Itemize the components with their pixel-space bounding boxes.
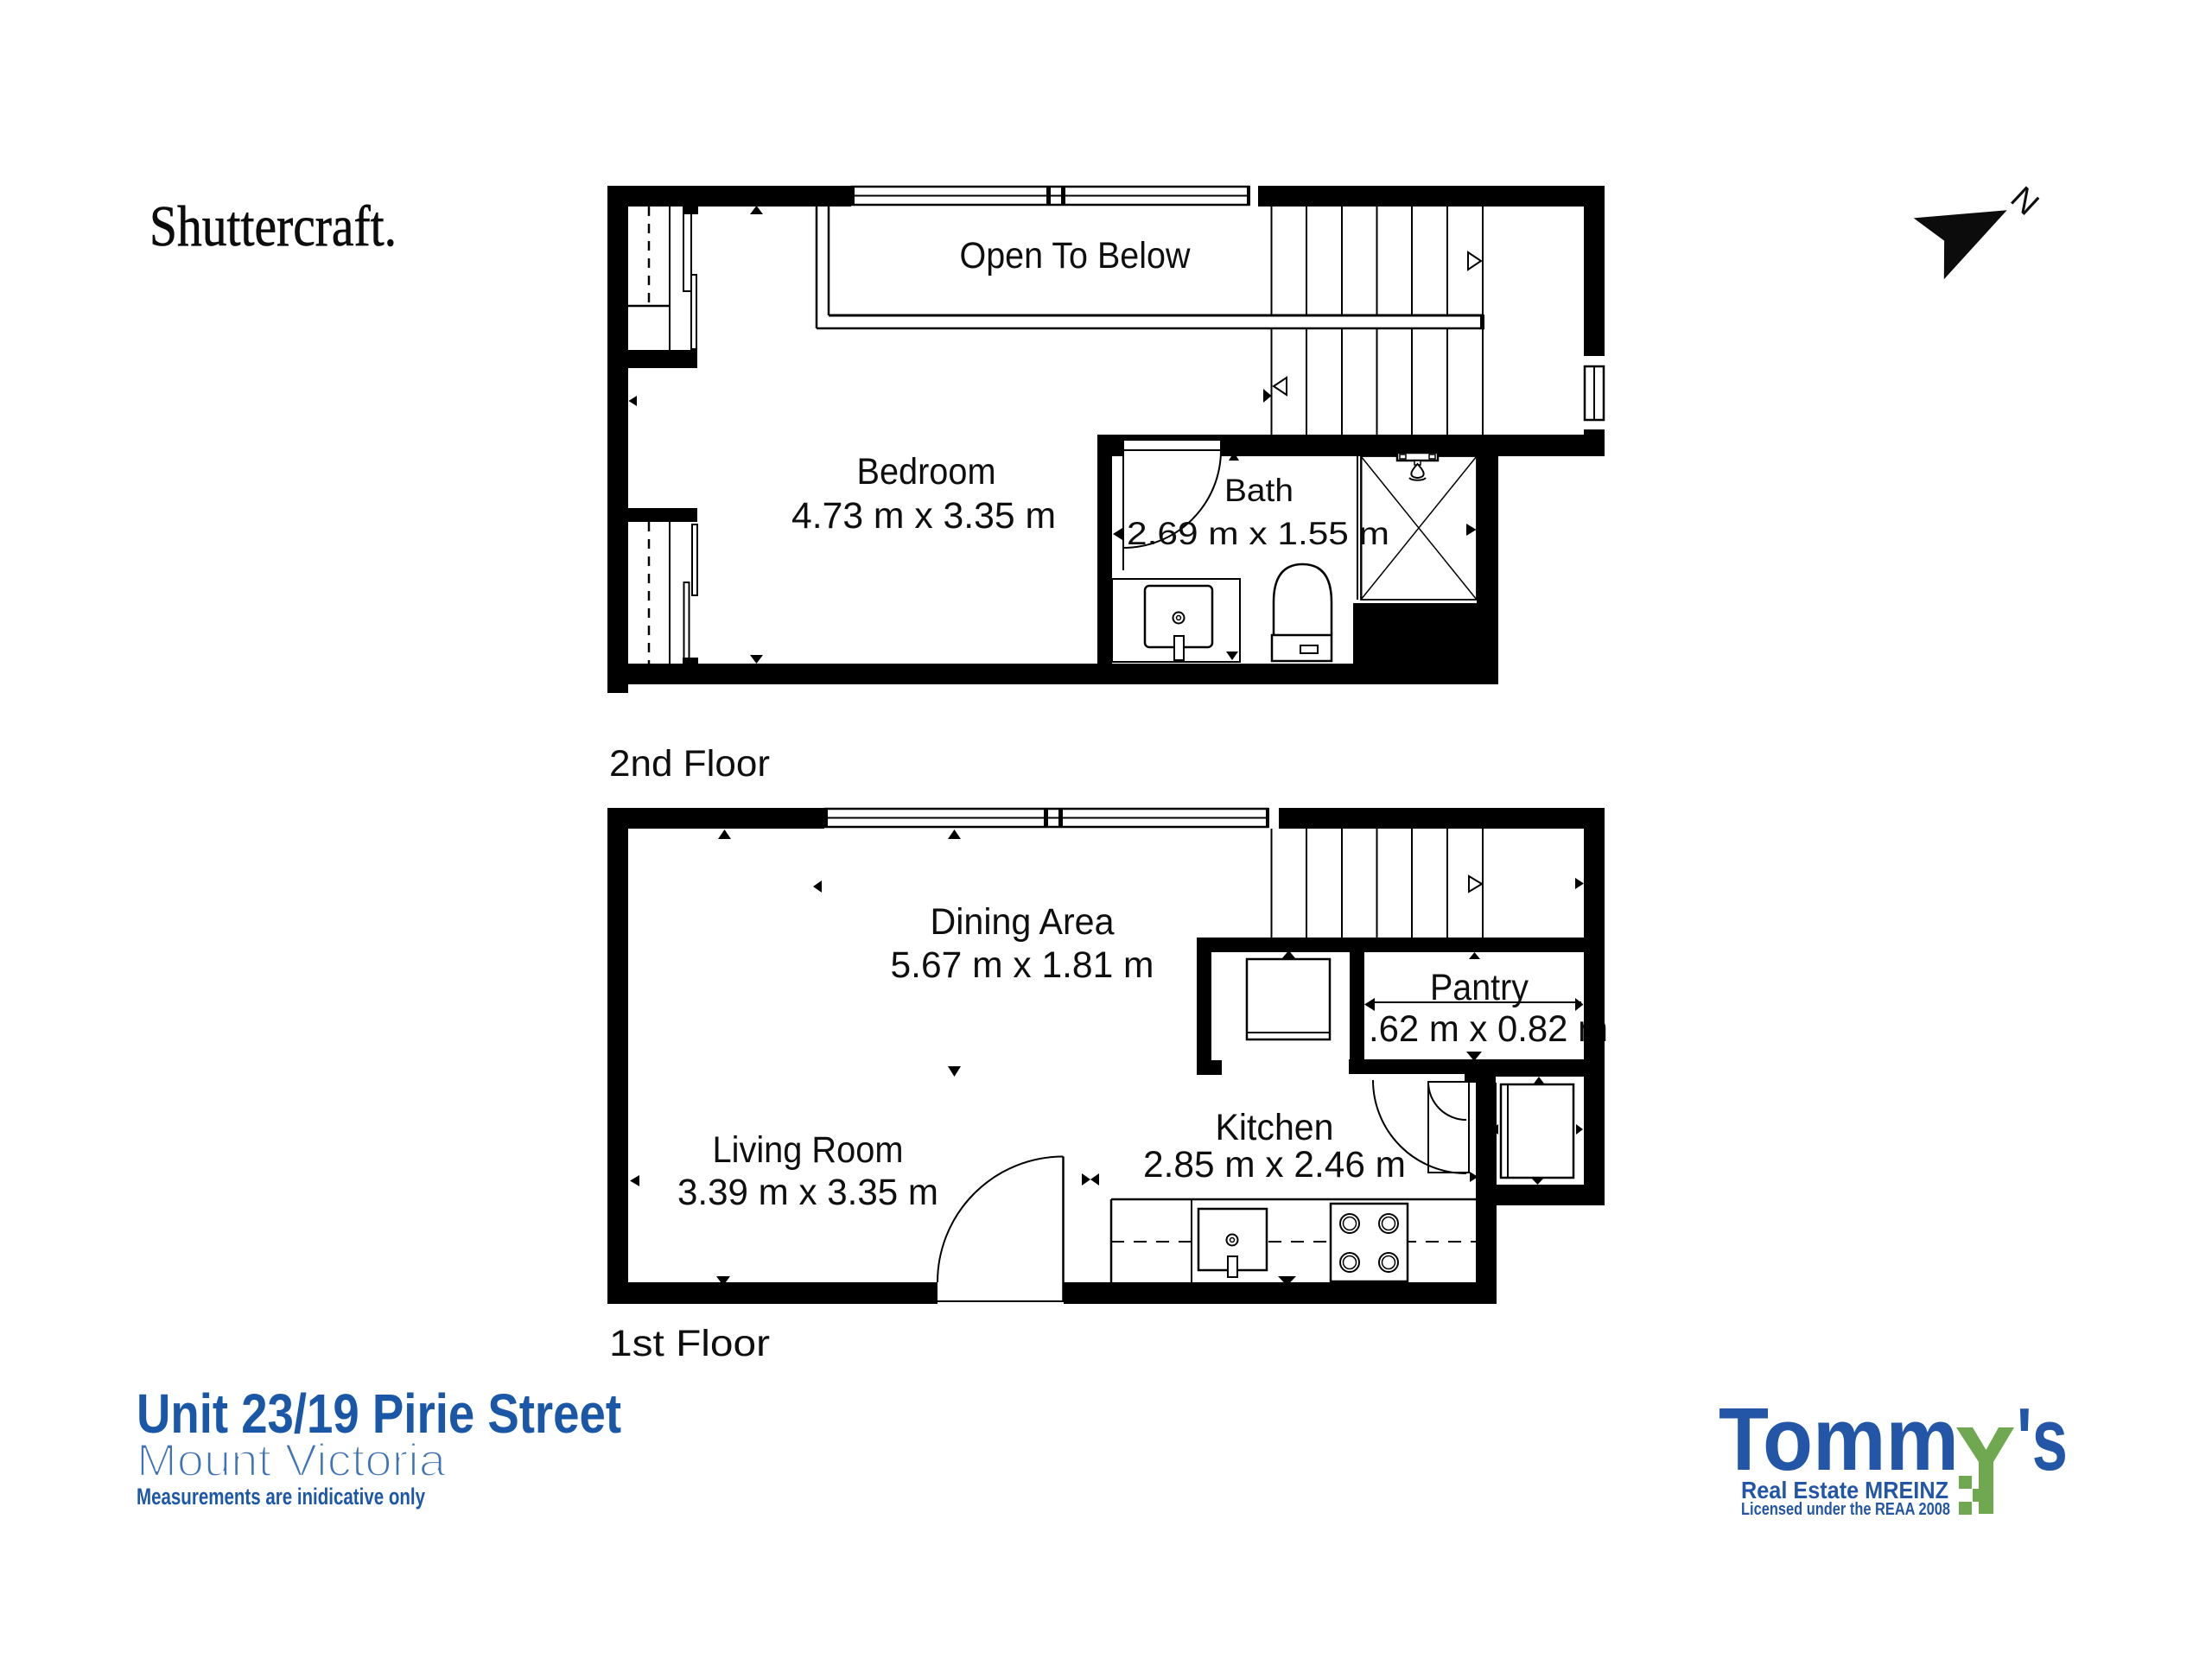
svg-text:Pantry: Pantry	[1430, 967, 1529, 1008]
svg-text:Kitchen: Kitchen	[1216, 1107, 1334, 1148]
svg-text:Open To Below: Open To Below	[960, 235, 1192, 276]
svg-text:2.69 m x 1.55 m: 2.69 m x 1.55 m	[1127, 516, 1389, 551]
svg-text:Living Room: Living Room	[713, 1129, 904, 1171]
svg-text:3.39 m x 3.35 m: 3.39 m x 3.35 m	[677, 1172, 938, 1213]
svg-text:1st Floor: 1st Floor	[609, 1323, 770, 1364]
svg-text:Licensed under the REAA 2008: Licensed under the REAA 2008	[1741, 1500, 1950, 1519]
svg-text:Tomm: Tomm	[1719, 1389, 1959, 1489]
svg-text:Measurements are inidicative o: Measurements are inidicative only	[137, 1484, 425, 1510]
svg-text:2nd Floor: 2nd Floor	[609, 743, 770, 785]
svg-text:'s: 's	[2017, 1389, 2068, 1489]
svg-text:4.73 m x 3.35 m: 4.73 m x 3.35 m	[791, 495, 1056, 537]
svg-text:5.67 m x 1.81 m: 5.67 m x 1.81 m	[891, 944, 1154, 986]
svg-text:2.85 m x 2.46 m: 2.85 m x 2.46 m	[1143, 1144, 1406, 1185]
svg-text:Shuttercraft.: Shuttercraft.	[149, 194, 397, 258]
svg-text:Dining Area: Dining Area	[931, 901, 1115, 943]
svg-text:Mount Victoria: Mount Victoria	[137, 1435, 447, 1486]
svg-text:.62 m x 0.82 m: .62 m x 0.82 m	[1369, 1008, 1608, 1050]
svg-text:Bedroom: Bedroom	[857, 451, 996, 493]
svg-text:Bath: Bath	[1224, 473, 1294, 508]
